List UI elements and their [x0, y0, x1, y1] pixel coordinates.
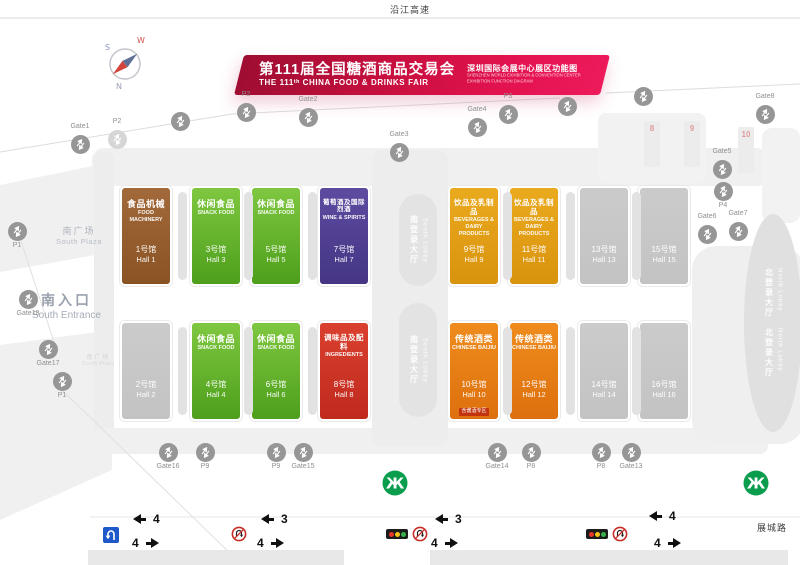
svg-text:Ж: Ж	[386, 475, 405, 493]
gate-label: Gate17	[37, 360, 60, 367]
hall-category: 饮品及乳制品 BEVERAGES & DAIRY PRODUCTS	[511, 199, 557, 238]
hall-number: 8号馆 Hall 8	[321, 380, 367, 399]
hall-4[interactable]: 休闲食品 SNACK FOOD 4号馆 Hall 4	[190, 321, 242, 421]
left-arrow-icon	[438, 518, 448, 521]
hall-3[interactable]: 休闲食品 SNACK FOOD 3号馆 Hall 3	[190, 186, 242, 286]
right-arrow-icon	[445, 542, 455, 545]
hall-number: 6号馆 Hall 6	[253, 380, 299, 399]
gate-icon-Gate5[interactable]	[713, 160, 732, 179]
hall-category: 传统酒类 CHINESE BAIJIU	[511, 334, 557, 352]
gate-label: P1	[58, 392, 67, 399]
gate-icon-P9[interactable]	[196, 443, 215, 462]
gate-icon-Gate14[interactable]	[488, 443, 507, 462]
right-arrow-icon	[146, 542, 156, 545]
gate-label: P8	[527, 463, 536, 470]
gate-label: Gate14	[486, 463, 509, 470]
hall-number: 1号馆 Hall 1	[123, 245, 169, 264]
south-lobby-lower: 南登录大厅 South Lobby	[399, 303, 437, 417]
arrows-icon	[757, 106, 772, 121]
hall-number: 14号馆 Hall 14	[581, 380, 627, 399]
gate-label: Gate13	[620, 463, 643, 470]
arrows-icon	[20, 291, 35, 306]
lane-count-left: 3	[260, 512, 288, 526]
gate-icon-Gate18[interactable]	[19, 290, 38, 309]
gate-label: Gate15	[292, 463, 315, 470]
gate-icon-Gate1[interactable]	[71, 135, 90, 154]
gate-icon-Gate7[interactable]	[729, 222, 748, 241]
gate-label: Gate2	[298, 96, 317, 103]
hall-number: 16号馆 Hall 16	[641, 380, 687, 399]
gate-icon-u3[interactable]	[634, 87, 653, 106]
arrows-icon	[730, 223, 745, 238]
gate-label: P2	[242, 91, 251, 98]
hall-number: 9号馆 Hall 9	[451, 245, 497, 264]
svg-text:Ж: Ж	[747, 475, 766, 493]
hall-15[interactable]: 15号馆 Hall 15	[638, 186, 690, 286]
hall-9[interactable]: 饮品及乳制品 BEVERAGES & DAIRY PRODUCTS 9号馆 Ha…	[448, 186, 500, 286]
hall-category: 葡萄酒及国际烈酒 WINE & SPIRITS	[321, 199, 367, 222]
gate-icon-Gate17[interactable]	[39, 340, 58, 359]
corridor-bar	[244, 327, 253, 415]
top-road-label: 沿江高速	[390, 3, 430, 16]
corridor-bar	[632, 192, 641, 280]
arrows-icon	[295, 444, 310, 459]
arrows-icon	[40, 341, 55, 356]
corridor-bar	[308, 327, 317, 415]
arrows-icon	[391, 144, 406, 159]
hall-2[interactable]: 2号馆 Hall 2	[120, 321, 172, 421]
hall-category: 食品机械 FOOD MACHINERY	[123, 199, 169, 224]
north-lobby: 北登录大厅 North Lobby 北登录大厅 North Lobby	[744, 214, 800, 432]
gate-icon-Gate3[interactable]	[390, 143, 409, 162]
north-lobby-cn: 北登录大厅	[764, 328, 775, 378]
gate-icon-P1[interactable]	[53, 372, 72, 391]
corridor-bar	[566, 327, 575, 415]
hall-number: 10号馆 Hall 10 含酱酒专区	[451, 380, 497, 417]
gate-icon-Gate13[interactable]	[622, 443, 641, 462]
gate-icon-P1[interactable]	[8, 222, 27, 241]
gate-label: Gate5	[712, 148, 731, 155]
arrows-icon	[197, 444, 212, 459]
north-hall-strip-8: 8	[644, 121, 660, 167]
gate-label: Gate6	[697, 213, 716, 220]
hall-8[interactable]: 调味品及配料 INGREDIENTS 8号馆 Hall 8	[318, 321, 370, 421]
no-u-turn-sign	[612, 526, 628, 542]
corridor-bar	[632, 327, 641, 415]
arrows-icon	[109, 131, 124, 146]
corridor-bar	[566, 192, 575, 280]
gate-label: Gate4	[467, 106, 486, 113]
arrows-icon	[469, 119, 484, 134]
hall-number: 7号馆 Hall 7	[321, 245, 367, 264]
gate-label: Gate8	[755, 93, 774, 100]
gate-label: Gate16	[157, 463, 180, 470]
gate-label: Gate18	[17, 310, 40, 317]
gate-label: P2	[113, 118, 122, 125]
event-title-banner: 第111届全国糖酒商品交易会 THE 111ᵗʰ CHINA FOOD & DR…	[234, 55, 610, 95]
hall-number: 2号馆 Hall 2	[123, 380, 169, 399]
hall-7[interactable]: 葡萄酒及国际烈酒 WINE & SPIRITS 7号馆 Hall 7	[318, 186, 370, 286]
banner-subtitle-en1: SHENZHEN WORLD EXHIBITION & CONVENTION C…	[467, 73, 581, 78]
hall-number: 4号馆 Hall 4	[193, 380, 239, 399]
gate-icon-P2[interactable]	[237, 103, 256, 122]
lane-count-right: 4	[257, 536, 285, 550]
corridor-bar	[503, 327, 512, 415]
hall-10[interactable]: 传统酒类 CHINESE BAIJIU 10号馆 Hall 10 含酱酒专区	[448, 321, 500, 421]
bottom-road-label: 展城路	[757, 521, 787, 534]
hall-number: 12号馆 Hall 12	[511, 380, 557, 399]
hall-12[interactable]: 传统酒类 CHINESE BAIJIU 12号馆 Hall 12	[508, 321, 560, 421]
hall-number: 5号馆 Hall 5	[253, 245, 299, 264]
gate-icon-P4[interactable]	[714, 182, 733, 201]
north-lobby-cn: 北登录大厅	[764, 268, 775, 318]
left-arrow-icon	[136, 518, 146, 521]
gate-label: P4	[719, 202, 728, 209]
corridor-bar	[308, 192, 317, 280]
arrows-icon	[9, 223, 24, 238]
lane-count-left: 4	[132, 512, 160, 526]
corridor-bar	[503, 192, 512, 280]
south-plaza-label: 南广场 South Plaza	[56, 224, 102, 246]
hall-number: 13号馆 Hall 13	[581, 245, 627, 264]
south-lobby-upper: 南登录大厅 South Lobby	[399, 194, 437, 286]
metro-station-icon[interactable]: Ж	[382, 470, 408, 496]
lane-count-right: 4	[132, 536, 160, 550]
hall-category: 休闲食品 SNACK FOOD	[193, 334, 239, 352]
gate-label: P1	[13, 242, 22, 249]
lane-count-left: 3	[434, 512, 462, 526]
hall-category: 休闲食品 SNACK FOOD	[253, 199, 299, 217]
gate-icon-Gate8[interactable]	[756, 105, 775, 124]
gate-label: P9	[201, 463, 210, 470]
hall-number: 15号馆 Hall 15	[641, 245, 687, 264]
arrows-icon	[623, 444, 638, 459]
banner-title-en: THE 111ᵗʰ CHINA FOOD & DRINKS FAIR	[259, 79, 455, 87]
gate-label: P3	[504, 93, 513, 100]
hall-category: 休闲食品 SNACK FOOD	[253, 334, 299, 352]
arrows-icon	[699, 226, 714, 241]
arrows-icon	[160, 444, 175, 459]
arrows-icon	[635, 88, 650, 103]
lane-count-right: 4	[654, 536, 682, 550]
north-hall-strip-10: 10	[738, 127, 754, 173]
arrows-icon	[500, 106, 515, 121]
gate-icon-P8[interactable]	[522, 443, 541, 462]
arrows-icon	[268, 444, 283, 459]
compass-n: N	[116, 82, 122, 91]
gate-icon-Gate4[interactable]	[468, 118, 487, 137]
gate-icon-Gate6[interactable]	[698, 225, 717, 244]
arrows-icon	[54, 373, 69, 388]
south-lobby-cn: 南登录大厅	[409, 335, 420, 385]
north-lobby-en: North Lobby	[777, 268, 783, 318]
south-plaza-label-faint: 南广场 South Plaza	[82, 352, 114, 367]
hall-number: 3号馆 Hall 3	[193, 245, 239, 264]
right-arrow-icon	[271, 542, 281, 545]
venue-map: 沿江高速 S W N 第111届全国糖酒商品交易会 THE 111ᵗʰ CH	[0, 0, 800, 565]
hall-category: 传统酒类 CHINESE BAIJIU	[451, 334, 497, 352]
banner-subtitle-en2: EXHIBITION FUNCTION DIAGRAM	[467, 79, 581, 84]
south-lobby-en: South Lobby	[422, 218, 428, 263]
right-arrow-icon	[668, 542, 678, 545]
hall-category: 休闲食品 SNACK FOOD	[193, 199, 239, 217]
hall-1[interactable]: 食品机械 FOOD MACHINERY 1号馆 Hall 1	[120, 186, 172, 286]
compass-w: W	[137, 36, 145, 45]
gate-label: Gate1	[70, 123, 89, 130]
traffic-light-icon	[586, 529, 608, 539]
gate-label: P8	[597, 463, 606, 470]
u-turn-sign	[103, 527, 119, 543]
arrows-icon	[489, 444, 504, 459]
gate-icon-Gate2[interactable]	[299, 108, 318, 127]
gate-icon-P2[interactable]	[108, 130, 127, 149]
gate-icon-Gate15[interactable]	[294, 443, 313, 462]
gate-label: Gate7	[728, 210, 747, 217]
north-lobby-en: North Lobby	[777, 328, 783, 378]
corridor-bar	[178, 327, 187, 415]
north-hall-strip-9: 9	[684, 121, 700, 167]
traffic-light-icon	[386, 529, 408, 539]
arrows-icon	[72, 136, 87, 151]
hall-16[interactable]: 16号馆 Hall 16	[638, 321, 690, 421]
banner-title-cn: 第111届全国糖酒商品交易会	[259, 63, 455, 78]
gate-label: P9	[272, 463, 281, 470]
hall-category: 调味品及配料 INGREDIENTS	[321, 334, 367, 359]
metro-station-icon[interactable]: Ж	[743, 470, 769, 496]
gate-icon-u2[interactable]	[558, 97, 577, 116]
no-u-turn-sign	[231, 526, 247, 542]
hall-13[interactable]: 13号馆 Hall 13	[578, 186, 630, 286]
arrows-icon	[172, 113, 187, 128]
gate-icon-P9[interactable]	[267, 443, 286, 462]
arrows-icon	[523, 444, 538, 459]
hall-number: 11号馆 Hall 11	[511, 245, 557, 264]
hall-14[interactable]: 14号馆 Hall 14	[578, 321, 630, 421]
hall-category: 饮品及乳制品 BEVERAGES & DAIRY PRODUCTS	[451, 199, 497, 238]
hall-11[interactable]: 饮品及乳制品 BEVERAGES & DAIRY PRODUCTS 11号馆 H…	[508, 186, 560, 286]
gate-icon-P3[interactable]	[499, 105, 518, 124]
gate-icon-u1[interactable]	[171, 112, 190, 131]
gate-label: Gate3	[389, 131, 408, 138]
hall-note: 含酱酒专区	[459, 408, 488, 416]
hall-5[interactable]: 休闲食品 SNACK FOOD 5号馆 Hall 5	[250, 186, 302, 286]
south-lobby-en: South Lobby	[422, 338, 428, 383]
compass-icon: S W N	[95, 30, 155, 92]
hall-6[interactable]: 休闲食品 SNACK FOOD 6号馆 Hall 6	[250, 321, 302, 421]
arrows-icon	[559, 98, 574, 113]
lane-count-right: 4	[431, 536, 459, 550]
no-u-turn-sign	[412, 526, 428, 542]
south-lobby-cn: 南登录大厅	[409, 215, 420, 265]
gate-icon-Gate16[interactable]	[159, 443, 178, 462]
arrows-icon	[300, 109, 315, 124]
corridor-bar	[244, 192, 253, 280]
left-arrow-icon	[264, 518, 274, 521]
lane-count-left: 4	[648, 509, 676, 523]
south-entrance-label: 南入口 South Entrance	[32, 290, 101, 321]
arrows-icon	[593, 444, 608, 459]
arrows-icon	[714, 161, 729, 176]
compass-s: S	[105, 43, 110, 52]
arrows-icon	[715, 183, 730, 198]
corridor-bar	[178, 192, 187, 280]
arrows-icon	[238, 104, 253, 119]
left-arrow-icon	[652, 515, 662, 518]
gate-icon-P8[interactable]	[592, 443, 611, 462]
